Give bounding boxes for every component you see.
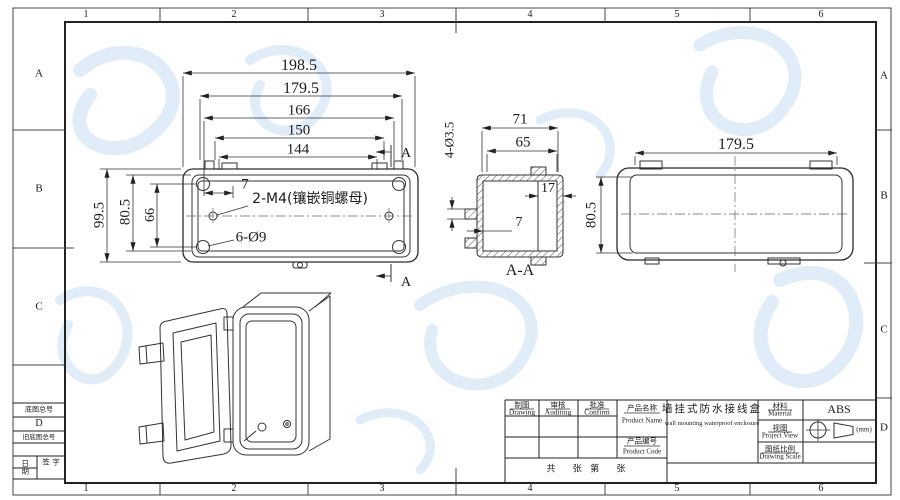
base-drawing-no-label: 底图总号 [25, 407, 53, 414]
dim-lid-height: 80.5 [119, 199, 134, 225]
dim-body-depth: 65 [516, 136, 531, 151]
zone-number-top: 4 [528, 10, 533, 20]
drawing-sheet: 1 2 3 4 5 6 1 2 3 4 5 6 A B C A B C D 底图… [0, 0, 900, 500]
zone-number-bottom: 2 [232, 484, 237, 494]
dim-side-width: 179.5 [718, 137, 754, 153]
dim-hole-span-width: 150 [288, 124, 311, 139]
base-drawing-no-value: D [35, 419, 42, 429]
product-name-label-zh: 产品名称 [627, 404, 657, 412]
dim-hole-span-height: 66 [144, 208, 158, 222]
engineering-drawing [0, 0, 900, 500]
dim-post-offset: 7 [241, 178, 249, 193]
zone-number-top: 6 [819, 10, 824, 20]
section-mark-bottom: A [401, 276, 411, 290]
note-m4-inserts: 2-M4(镶嵌铜螺母) [252, 192, 368, 206]
isometric-view [139, 293, 331, 463]
product-name-value-zh: 墙挂式防水接线盒 [662, 404, 762, 415]
confirm-label-en: Confirm [584, 408, 609, 416]
zone-number-bottom: 5 [675, 484, 680, 494]
material-value: ABS [827, 403, 850, 415]
section-mark-top: A [401, 147, 411, 161]
dim-inner-depth: 17 [541, 182, 555, 196]
auditing-label-en: Auditing [545, 408, 572, 416]
signature-label: 签 字 [42, 458, 59, 466]
zone-number-bottom: 3 [380, 484, 385, 494]
dim-lid-width: 179.5 [283, 81, 319, 97]
zone-number-top: 5 [675, 10, 680, 20]
zone-number-top: 1 [84, 10, 89, 20]
section-label: A-A [506, 263, 534, 279]
view-label-en: Project View [762, 433, 798, 440]
product-name-value-en: wall mounting waterproof enclosure [665, 421, 759, 428]
zone-letter-right: C [880, 325, 887, 336]
dim-depth-overall: 71 [513, 113, 528, 128]
zone-number-bottom: 1 [84, 484, 89, 494]
dim-overall-height: 99.5 [93, 202, 108, 228]
dim-tab: 7 [516, 216, 523, 230]
old-base-drawing-no-label: 旧底图总号 [23, 434, 56, 441]
dim-tab-holes: 4-Ø3.5 [443, 122, 456, 158]
zone-letter-right: A [880, 71, 888, 82]
sheet-count-row: 共 张 第 张 [547, 466, 626, 475]
zone-letter-left: C [35, 302, 42, 313]
scale-label-en: Drawing Scale [759, 454, 800, 461]
side-view [617, 156, 853, 272]
dim-overall-width: 198.5 [281, 58, 317, 74]
zone-letter-left: A [35, 69, 43, 80]
projection-symbol-icon [806, 419, 853, 441]
unit-label: (mm) [856, 427, 872, 434]
front-view [183, 161, 418, 268]
product-name-label-en: Product Name [622, 418, 662, 425]
note-corner-holes: 6-Ø9 [236, 231, 267, 246]
dim-inner-width: 144 [287, 143, 310, 158]
dim-side-height: 80.5 [585, 202, 600, 228]
zone-letter-right: B [880, 191, 887, 202]
zone-number-top: 2 [232, 10, 237, 20]
date-label: 日期 [21, 460, 29, 475]
zone-number-top: 3 [380, 10, 385, 20]
border-frame [13, 8, 892, 495]
zone-number-bottom: 4 [528, 484, 533, 494]
zone-number-bottom: 6 [819, 484, 824, 494]
zone-letter-left: B [35, 184, 42, 195]
product-code-label-zh: 产品编号 [627, 437, 657, 445]
product-code-label-en: Product Code [623, 449, 661, 456]
material-label-en: Material [768, 411, 792, 418]
zone-letter-right: D [880, 423, 888, 434]
dim-tab-width: 166 [288, 104, 311, 119]
drawing-label-en: Drawing [509, 408, 535, 416]
